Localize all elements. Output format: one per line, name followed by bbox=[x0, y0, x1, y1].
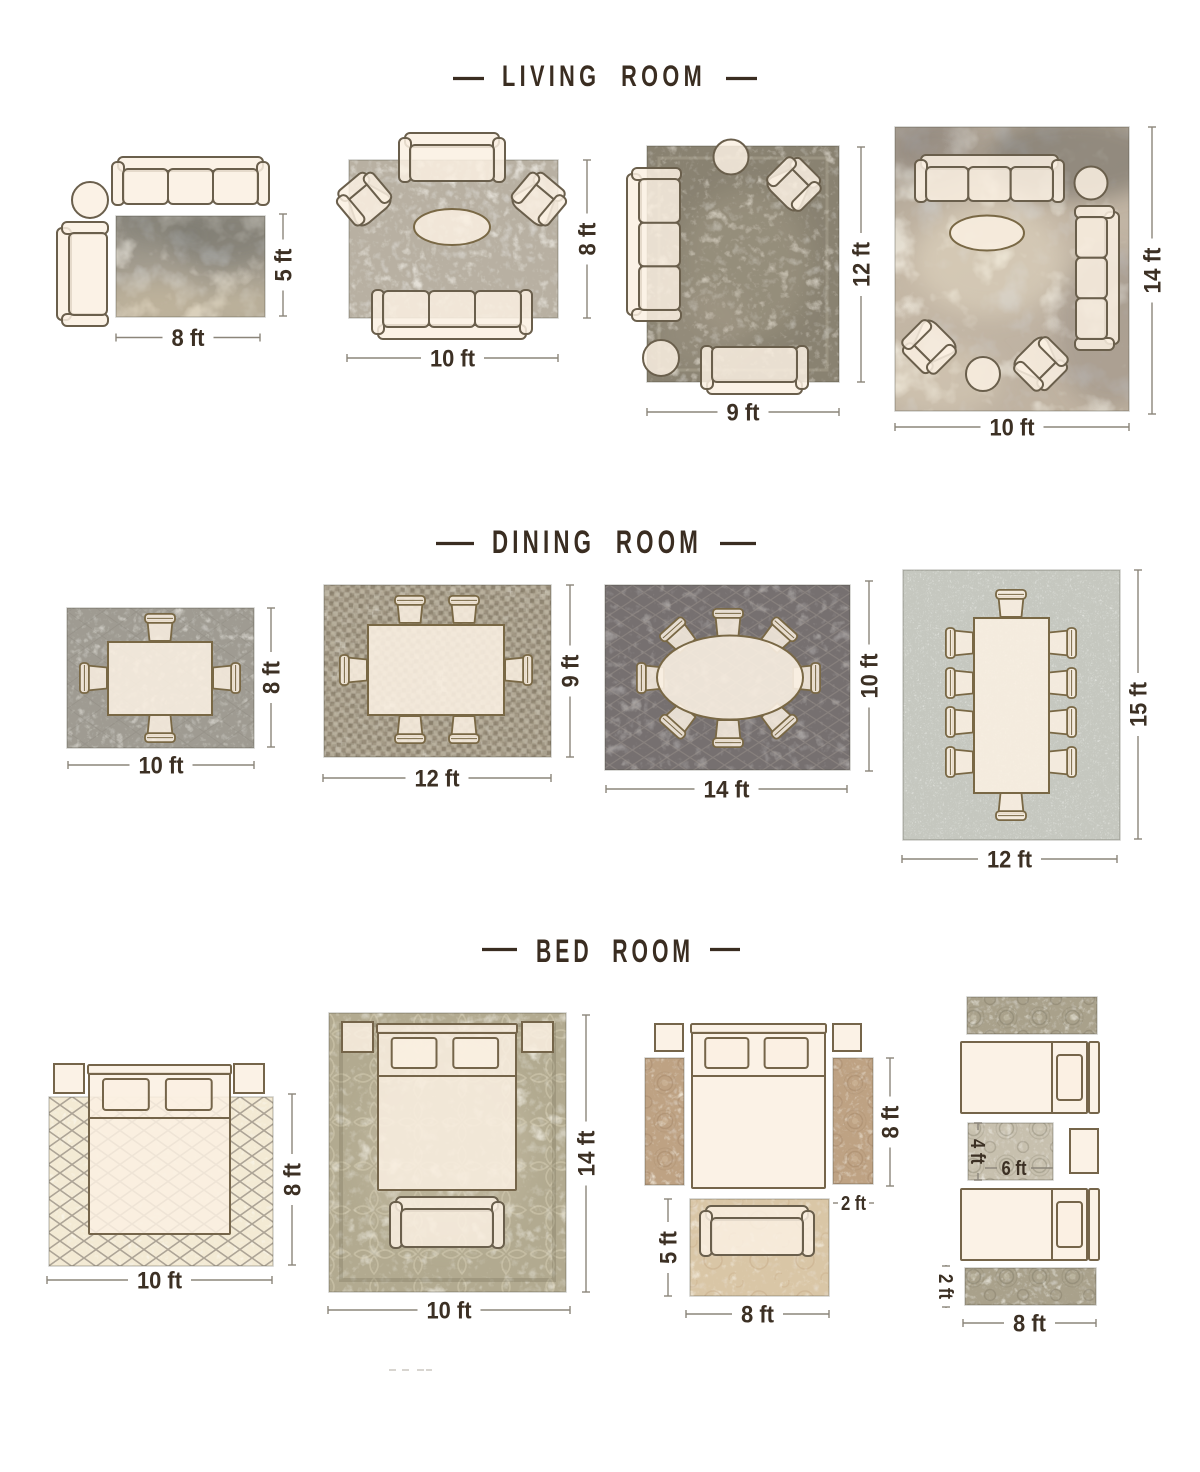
svg-text:12 ft: 12 ft bbox=[415, 766, 460, 793]
svg-text:12 ft: 12 ft bbox=[987, 847, 1032, 874]
svg-text:5 ft: 5 ft bbox=[271, 248, 298, 281]
svg-text:8 ft: 8 ft bbox=[172, 325, 205, 352]
svg-text:8 ft: 8 ft bbox=[280, 1163, 307, 1196]
svg-text:10 ft: 10 ft bbox=[139, 753, 184, 780]
svg-text:2 ft: 2 ft bbox=[934, 1274, 956, 1299]
svg-text:8 ft: 8 ft bbox=[741, 1302, 774, 1329]
svg-text:8 ft: 8 ft bbox=[878, 1105, 905, 1138]
svg-text:9 ft: 9 ft bbox=[558, 654, 585, 687]
svg-text:8 ft: 8 ft bbox=[1013, 1311, 1046, 1338]
svg-text:9 ft: 9 ft bbox=[727, 400, 760, 427]
svg-text:5 ft: 5 ft bbox=[656, 1231, 683, 1264]
svg-text:15 ft: 15 ft bbox=[1126, 682, 1153, 727]
svg-text:10 ft: 10 ft bbox=[427, 1298, 472, 1325]
svg-text:LIVING ROOM: LIVING ROOM bbox=[502, 60, 706, 93]
svg-text:14 ft: 14 ft bbox=[704, 777, 750, 804]
svg-text:BED ROOM: BED ROOM bbox=[536, 933, 694, 969]
svg-text:10 ft: 10 ft bbox=[137, 1268, 182, 1295]
svg-text:6 ft: 6 ft bbox=[1002, 1158, 1027, 1180]
svg-text:4 ft: 4 ft bbox=[966, 1139, 988, 1164]
svg-text:14 ft: 14 ft bbox=[574, 1131, 601, 1177]
svg-text:14 ft: 14 ft bbox=[1140, 248, 1167, 294]
svg-text:8 ft: 8 ft bbox=[259, 661, 286, 694]
svg-text:2 ft: 2 ft bbox=[841, 1193, 866, 1215]
svg-text:8 ft: 8 ft bbox=[575, 222, 602, 255]
svg-text:DINING ROOM: DINING ROOM bbox=[492, 524, 702, 560]
svg-text:10 ft: 10 ft bbox=[430, 346, 475, 373]
svg-text:12 ft: 12 ft bbox=[849, 242, 876, 287]
svg-text:10 ft: 10 ft bbox=[990, 415, 1035, 442]
svg-text:10 ft: 10 ft bbox=[857, 654, 884, 699]
